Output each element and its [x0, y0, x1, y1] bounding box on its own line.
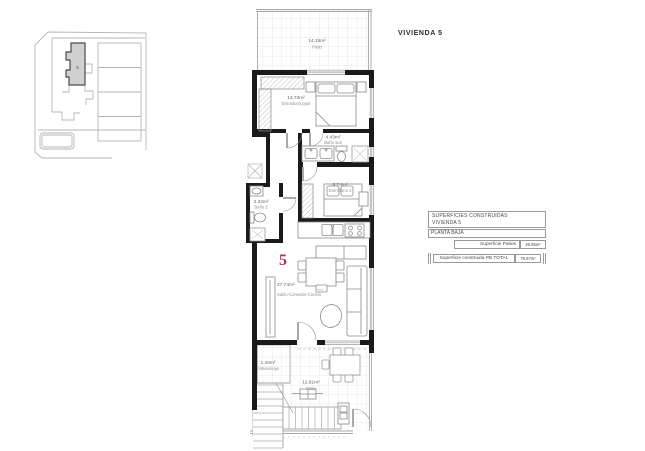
label-bano2-name: Baño 2 [254, 205, 268, 210]
wardrobe-left [259, 89, 271, 131]
site-units-column [98, 43, 141, 141]
window-salon-right [370, 268, 373, 330]
kitchen-counter [298, 222, 370, 238]
nightstand [357, 82, 366, 92]
door-arc-dorm-2 [303, 167, 317, 181]
tv-unit [266, 277, 275, 337]
bano-suit-fixtures [302, 146, 368, 162]
outdoor-chair [333, 375, 341, 382]
unit-number: 5 [279, 252, 287, 269]
coffee-table [318, 302, 344, 330]
site-unit5-outline [66, 43, 85, 85]
label-dorm2-name: Dormitorio 2 [329, 188, 352, 193]
patios-value: 26.96m² [520, 240, 546, 249]
label-salon-area: 27.74m² [277, 282, 295, 288]
areas-table-planta-baja: PLANTA BAJA [428, 229, 546, 238]
door-arc-bano-2 [283, 198, 296, 211]
areas-table-row-total: Superficie construida PB TOTAL 78.97m² [428, 253, 546, 264]
chair [298, 261, 306, 270]
window-dorm-2 [370, 185, 373, 215]
exterior-ac-unit [248, 164, 262, 178]
bano-2-fixtures [250, 186, 266, 241]
label-salon-name: Salón-Comedor-Cocina [277, 292, 321, 297]
label-patio-top-area: 14.15m² [308, 38, 326, 44]
areas-table-header: SUPERFICIES CONSTRUIDAS VIVIENDA 5 [428, 211, 546, 228]
floor-plan-sheet: 5 VIVIENDA 5 [0, 0, 645, 451]
window-dorm-ppal [370, 88, 373, 118]
toilet-cistern [250, 212, 254, 223]
outdoor-chair [322, 360, 329, 369]
sofa [347, 266, 367, 336]
nightstand [359, 192, 368, 206]
nightstand [306, 82, 315, 92]
areas-table: SUPERFICIES CONSTRUIDAS VIVIENDA 5 PLANT… [428, 211, 546, 264]
door-arc-bano-suit [310, 133, 323, 146]
outdoor-table [330, 355, 360, 375]
window-salon-bottom [325, 341, 360, 345]
toilet-bowl [338, 152, 346, 162]
label-patio-bottom-name: Patio [306, 386, 316, 391]
bed-principal [316, 82, 356, 126]
total-label: Superficie construida PB TOTAL [433, 254, 515, 263]
label-patio-top-name: Patio [312, 45, 322, 50]
label-almacenaje-name: Almacenaje [257, 366, 280, 371]
outdoor-chair [333, 348, 341, 355]
label-bano-suit-name: Baño suit [324, 140, 342, 145]
site-pool [40, 133, 74, 149]
dining-table [306, 258, 336, 286]
label-patio-bottom-area: 12.81m² [302, 380, 320, 386]
kitchen-island [316, 246, 366, 259]
window-bano-suit [370, 147, 373, 157]
wardrobe-dorm2 [302, 184, 313, 218]
annotation-acot: Acot. [317, 288, 324, 292]
door-arc-entrance [298, 322, 316, 340]
floor-plan-drawing: 5 VIVIENDA 5 [0, 0, 645, 451]
areas-table-header-line2: VIVIENDA 5 [432, 220, 542, 227]
label-dorm-ppal-name: Dormitorio ppal [282, 101, 310, 106]
kitchen-sink [333, 225, 343, 236]
drawing-title: VIVIENDA 5 [398, 30, 443, 37]
total-value: 78.97m² [515, 254, 541, 263]
outdoor-chair [345, 375, 353, 382]
outdoor-chair [345, 348, 353, 355]
water-heater [338, 403, 349, 424]
chair [336, 261, 344, 270]
toilet-bowl [255, 213, 266, 222]
chair [336, 273, 344, 282]
wardrobe-top [261, 77, 304, 89]
chair [298, 273, 306, 282]
window-top-patio [307, 71, 345, 75]
areas-table-row-patios: Superficie Patios 26.96m² [454, 240, 546, 249]
kitchen-sink [322, 225, 332, 236]
patios-label: Superficie Patios [454, 240, 520, 249]
toilet-cistern [336, 146, 347, 151]
site-plan-thumbnail: 5 [35, 32, 146, 158]
